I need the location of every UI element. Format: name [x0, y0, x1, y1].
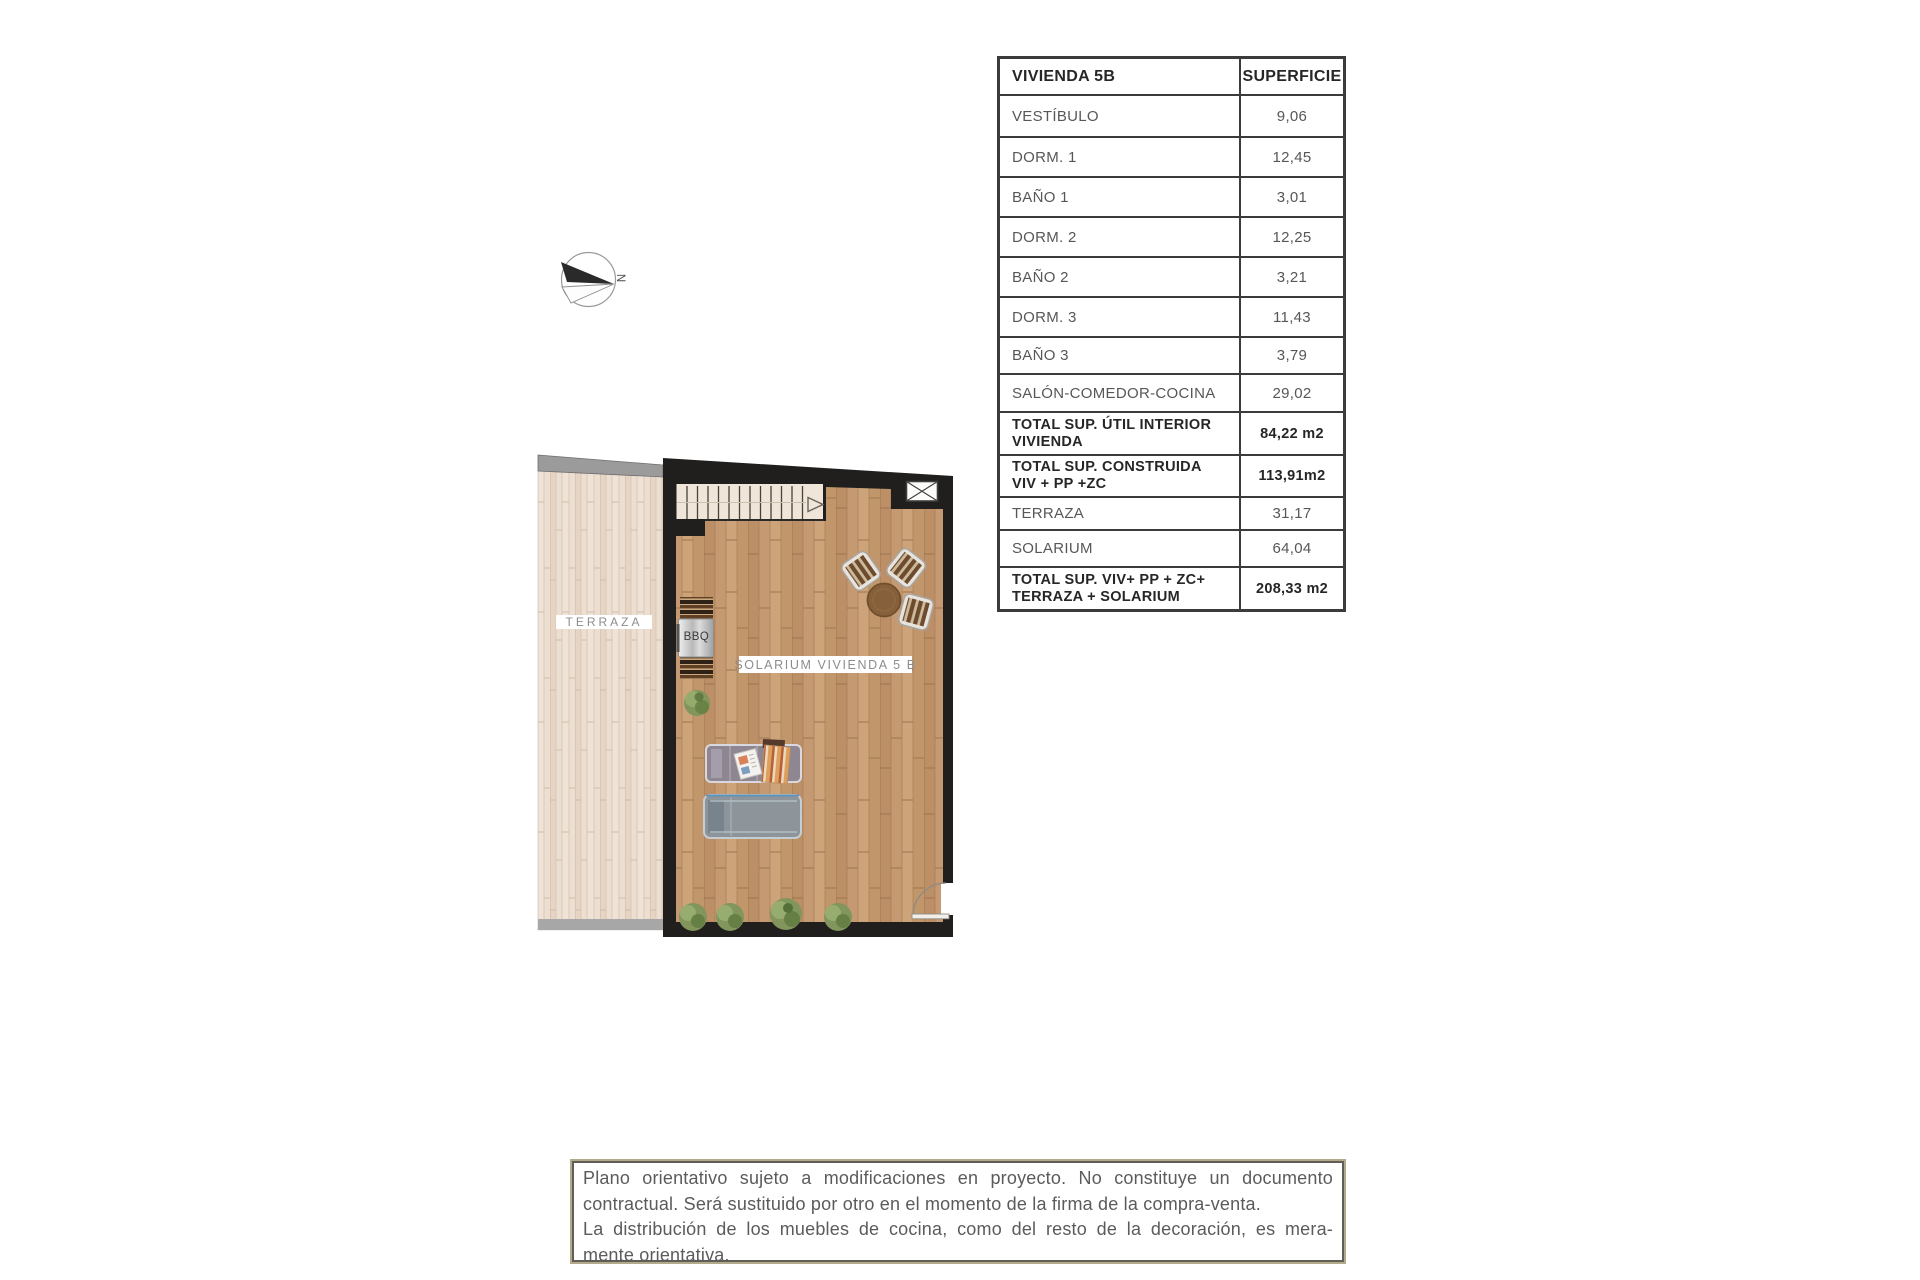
room-area-value: 64,04: [1241, 531, 1343, 566]
disclaimer-line: contractual. Será sustituido por otro en…: [583, 1192, 1333, 1218]
room-label: BAÑO 3: [1000, 338, 1241, 373]
sun-lounger: [706, 739, 801, 784]
plant: [684, 690, 710, 716]
table-row: TOTAL SUP. VIV+ PP + ZC+ TERRAZA + SOLAR…: [1000, 566, 1343, 609]
terrace-bottom-edge: [538, 919, 663, 930]
table-row: VESTÍBULO9,06: [1000, 96, 1343, 136]
plant: [824, 903, 852, 931]
room-label: TOTAL SUP. VIV+ PP + ZC+ TERRAZA + SOLAR…: [1000, 568, 1241, 609]
table-row: TOTAL SUP. CONSTRUIDA VIV + PP +ZC113,91…: [1000, 454, 1343, 496]
room-area-value: 12,45: [1241, 138, 1343, 176]
disclaimer-line: Plano orientativo sujeto a modificacione…: [583, 1166, 1333, 1192]
table-row: BAÑO 33,79: [1000, 336, 1343, 373]
room-label: SOLARIUM: [1000, 531, 1241, 566]
shaft-box-icon: [907, 482, 938, 502]
room-area-value: 12,25: [1241, 218, 1343, 256]
disclaimer-line: mente orientativa.: [583, 1243, 1333, 1269]
room-area-value: 29,02: [1241, 375, 1343, 411]
floorplan-page: { "plan": { "labels": { "terraza": "TERR…: [0, 0, 1920, 1280]
table-row: SALÓN-COMEDOR-COCINA29,02: [1000, 373, 1343, 411]
floorplan-drawing: [520, 238, 980, 960]
room-area-value: 11,43: [1241, 298, 1343, 336]
table-row: BAÑO 13,01: [1000, 176, 1343, 216]
towel: [761, 745, 790, 784]
room-area-value: 3,21: [1241, 258, 1343, 296]
sun-lounger: [704, 795, 801, 838]
room-label: SALÓN-COMEDOR-COCINA: [1000, 375, 1241, 411]
compass-north-label: N: [613, 271, 627, 285]
bbq-label: BBQ: [680, 629, 713, 645]
room-label: VESTÍBULO: [1000, 96, 1241, 136]
table-row: DORM. 112,45: [1000, 136, 1343, 176]
solarium-label: SOLARIUM VIVIENDA 5 B: [739, 656, 912, 673]
table-row: DORM. 212,25: [1000, 216, 1343, 256]
room-label: BAÑO 2: [1000, 258, 1241, 296]
room-label: BAÑO 1: [1000, 178, 1241, 216]
table-row: TERRAZA31,17: [1000, 496, 1343, 529]
area-table-header: VIVIENDA 5B SUPERFICIE: [1000, 59, 1343, 96]
stairs: [677, 484, 824, 521]
plant: [716, 903, 744, 931]
terraza-label: TERRAZA: [556, 615, 652, 629]
round-table: [868, 584, 901, 617]
room-label: TOTAL SUP. ÚTIL INTERIOR VIVIENDA: [1000, 413, 1241, 454]
room-area-value: 208,33 m2: [1241, 568, 1343, 609]
table-header-unit: VIVIENDA 5B: [1000, 59, 1241, 94]
room-label: DORM. 2: [1000, 218, 1241, 256]
room-label: TERRAZA: [1000, 498, 1241, 529]
room-label: DORM. 3: [1000, 298, 1241, 336]
compass-icon: [561, 253, 616, 307]
terrace-area: [538, 455, 663, 930]
area-table-rows: VESTÍBULO9,06DORM. 112,45BAÑO 13,01DORM.…: [1000, 96, 1343, 609]
plant: [679, 903, 707, 931]
solarium-area: [663, 458, 954, 937]
disclaimer-text: Plano orientativo sujeto a modificacione…: [572, 1161, 1344, 1262]
room-area-value: 84,22 m2: [1241, 413, 1343, 454]
disclaimer-box: Plano orientativo sujeto a modificacione…: [570, 1159, 1346, 1264]
table-row: TOTAL SUP. ÚTIL INTERIOR VIVIENDA84,22 m…: [1000, 411, 1343, 454]
table-header-surface: SUPERFICIE: [1241, 59, 1343, 94]
table-row: BAÑO 23,21: [1000, 256, 1343, 296]
room-area-value: 31,17: [1241, 498, 1343, 529]
room-area-value: 3,01: [1241, 178, 1343, 216]
area-table: VIVIENDA 5B SUPERFICIE VESTÍBULO9,06DORM…: [997, 56, 1346, 612]
room-area-value: 3,79: [1241, 338, 1343, 373]
plant: [770, 898, 802, 930]
table-row: DORM. 311,43: [1000, 296, 1343, 336]
room-area-value: 113,91m2: [1241, 456, 1343, 496]
room-area-value: 9,06: [1241, 96, 1343, 136]
table-row: SOLARIUM64,04: [1000, 529, 1343, 566]
room-label: DORM. 1: [1000, 138, 1241, 176]
disclaimer-line: La distribución de los muebles de cocina…: [583, 1217, 1333, 1243]
room-label: TOTAL SUP. CONSTRUIDA VIV + PP +ZC: [1000, 456, 1241, 496]
